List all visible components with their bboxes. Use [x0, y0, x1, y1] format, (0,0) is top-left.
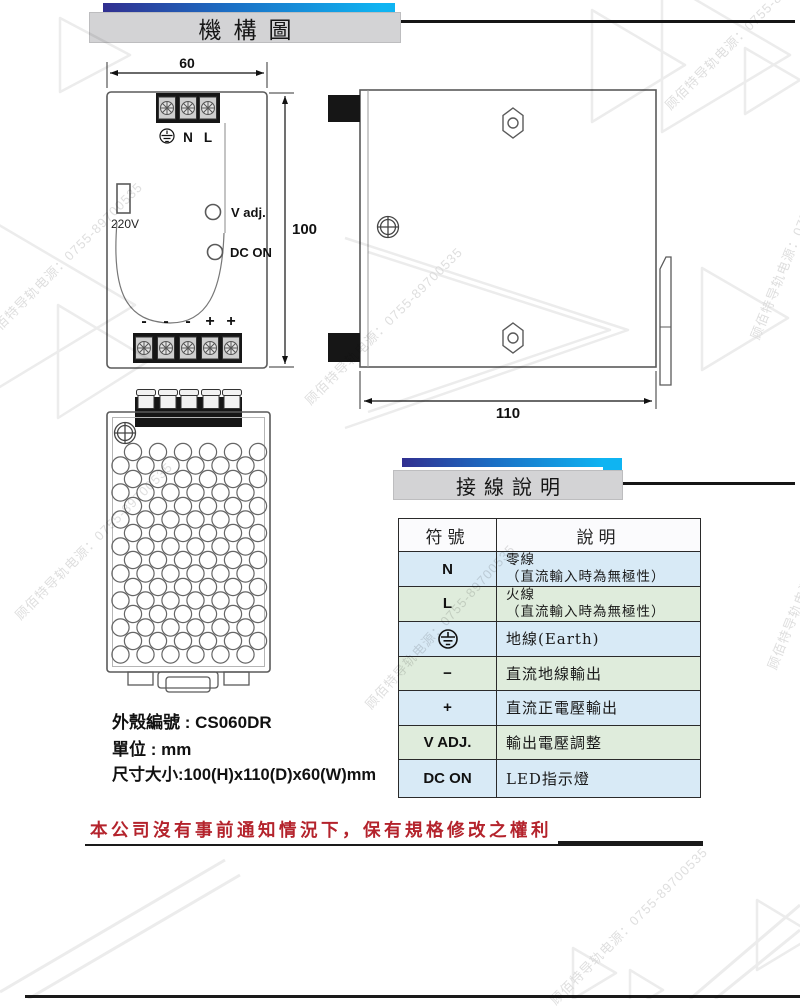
table-header-row: 符號 說明 — [399, 519, 701, 552]
vadj-label: V adj. — [231, 205, 266, 220]
symbol-cell: V ADJ. — [399, 725, 497, 759]
earth-icon — [399, 621, 497, 656]
din-clip-tabs — [128, 672, 249, 692]
datasheet-page: { "sections": { "mechanical_title": "機構圖… — [0, 0, 800, 999]
table-row-l: L 火線 （直流輸入時為無極性） — [399, 587, 701, 622]
table-header-desc: 說明 — [497, 519, 701, 552]
desc-cell: 輸出電壓調整 — [497, 725, 701, 759]
voltage-selector-switch — [117, 184, 130, 213]
desc-cell: 火線 （直流輸入時為無極性） — [497, 587, 701, 622]
dimension-width-label: 60 — [179, 55, 195, 71]
terminal-l-label: L — [204, 130, 212, 145]
dimension-height-label: 100 — [292, 221, 317, 238]
svg-text:-: - — [185, 313, 190, 330]
watermark-text: 顾佰特导轨电源：0755-89700535 — [545, 842, 711, 1008]
desc-cell: LED指示燈 — [497, 759, 701, 797]
unit-line: 單位 : mm — [112, 735, 191, 760]
vadj-pot-icon — [206, 205, 221, 220]
hex-nut-icon — [503, 108, 523, 138]
dimension-width: 60 — [107, 55, 267, 88]
terminal-block-side-bottom — [328, 333, 360, 362]
bottom-view-drawing — [107, 390, 270, 693]
symbol-cell: DC ON — [399, 759, 497, 797]
table-row-minus: − 直流地線輸出 — [399, 656, 701, 690]
table-row-plus: + 直流正電壓輸出 — [399, 690, 701, 725]
bottom-bar — [25, 995, 800, 998]
hex-nut-icon — [503, 323, 523, 353]
front-view-drawing: 60 100 N L 220V V adj. — [107, 55, 317, 368]
wiring-table: 符號 說明 N 零線 （直流輸入時為無極性） L 火線 （直流輸入時為無極性） … — [398, 518, 701, 798]
size-line: 尺寸大小:100(H)x110(D)x60(W)mm — [112, 761, 376, 785]
vent-holes — [112, 443, 267, 663]
desc-cell: 地線(Earth) — [497, 621, 701, 656]
side-view-drawing: 110 — [328, 90, 671, 422]
crosshead-screw-icon — [378, 217, 399, 238]
table-row-vadj: V ADJ. 輸出電壓調整 — [399, 725, 701, 759]
symbol-cell: N — [399, 552, 497, 587]
svg-text:-: - — [163, 313, 168, 330]
output-terminal-block — [133, 333, 242, 363]
svg-text:+: + — [205, 313, 214, 330]
section-title-wiring: 接線說明 — [393, 470, 623, 500]
symbol-cell: − — [399, 656, 497, 690]
symbol-cell: L — [399, 587, 497, 622]
panel-arc — [116, 222, 224, 323]
terminal-n-label: N — [183, 130, 193, 145]
terminal-block-side-top — [328, 95, 360, 122]
crosshead-screw-icon — [115, 423, 136, 444]
table-header-symbol: 符號 — [399, 519, 497, 552]
dimension-height: 100 — [269, 93, 317, 367]
section-title-mechanical: 機構圖 — [89, 12, 401, 43]
case-number-line: 外殼編號 : CS060DR — [112, 708, 272, 733]
dcon-label: DC ON — [230, 245, 272, 260]
earth-ground-icon — [160, 129, 174, 143]
voltage-selector-label: 220V — [111, 217, 139, 231]
notice-text: 本公司沒有事前通知情況下，保有規格修改之權利 — [90, 817, 552, 842]
desc-cell: 直流正電壓輸出 — [497, 690, 701, 725]
din-rail-clip — [660, 257, 671, 385]
dimension-depth: 110 — [360, 371, 656, 422]
table-row-earth: 地線(Earth) — [399, 621, 701, 656]
desc-cell: 零線 （直流輸入時為無極性） — [497, 552, 701, 587]
dimension-depth-label: 110 — [496, 405, 520, 422]
desc-cell: 直流地線輸出 — [497, 656, 701, 690]
table-row-n: N 零線 （直流輸入時為無極性） — [399, 552, 701, 587]
notice-rule-thick — [558, 841, 703, 846]
input-terminal-block — [156, 93, 220, 123]
symbol-cell: + — [399, 690, 497, 725]
svg-text:-: - — [141, 313, 146, 330]
table-row-dcon: DC ON LED指示燈 — [399, 759, 701, 797]
dcon-led-icon — [208, 245, 223, 260]
svg-text:+: + — [226, 313, 235, 330]
